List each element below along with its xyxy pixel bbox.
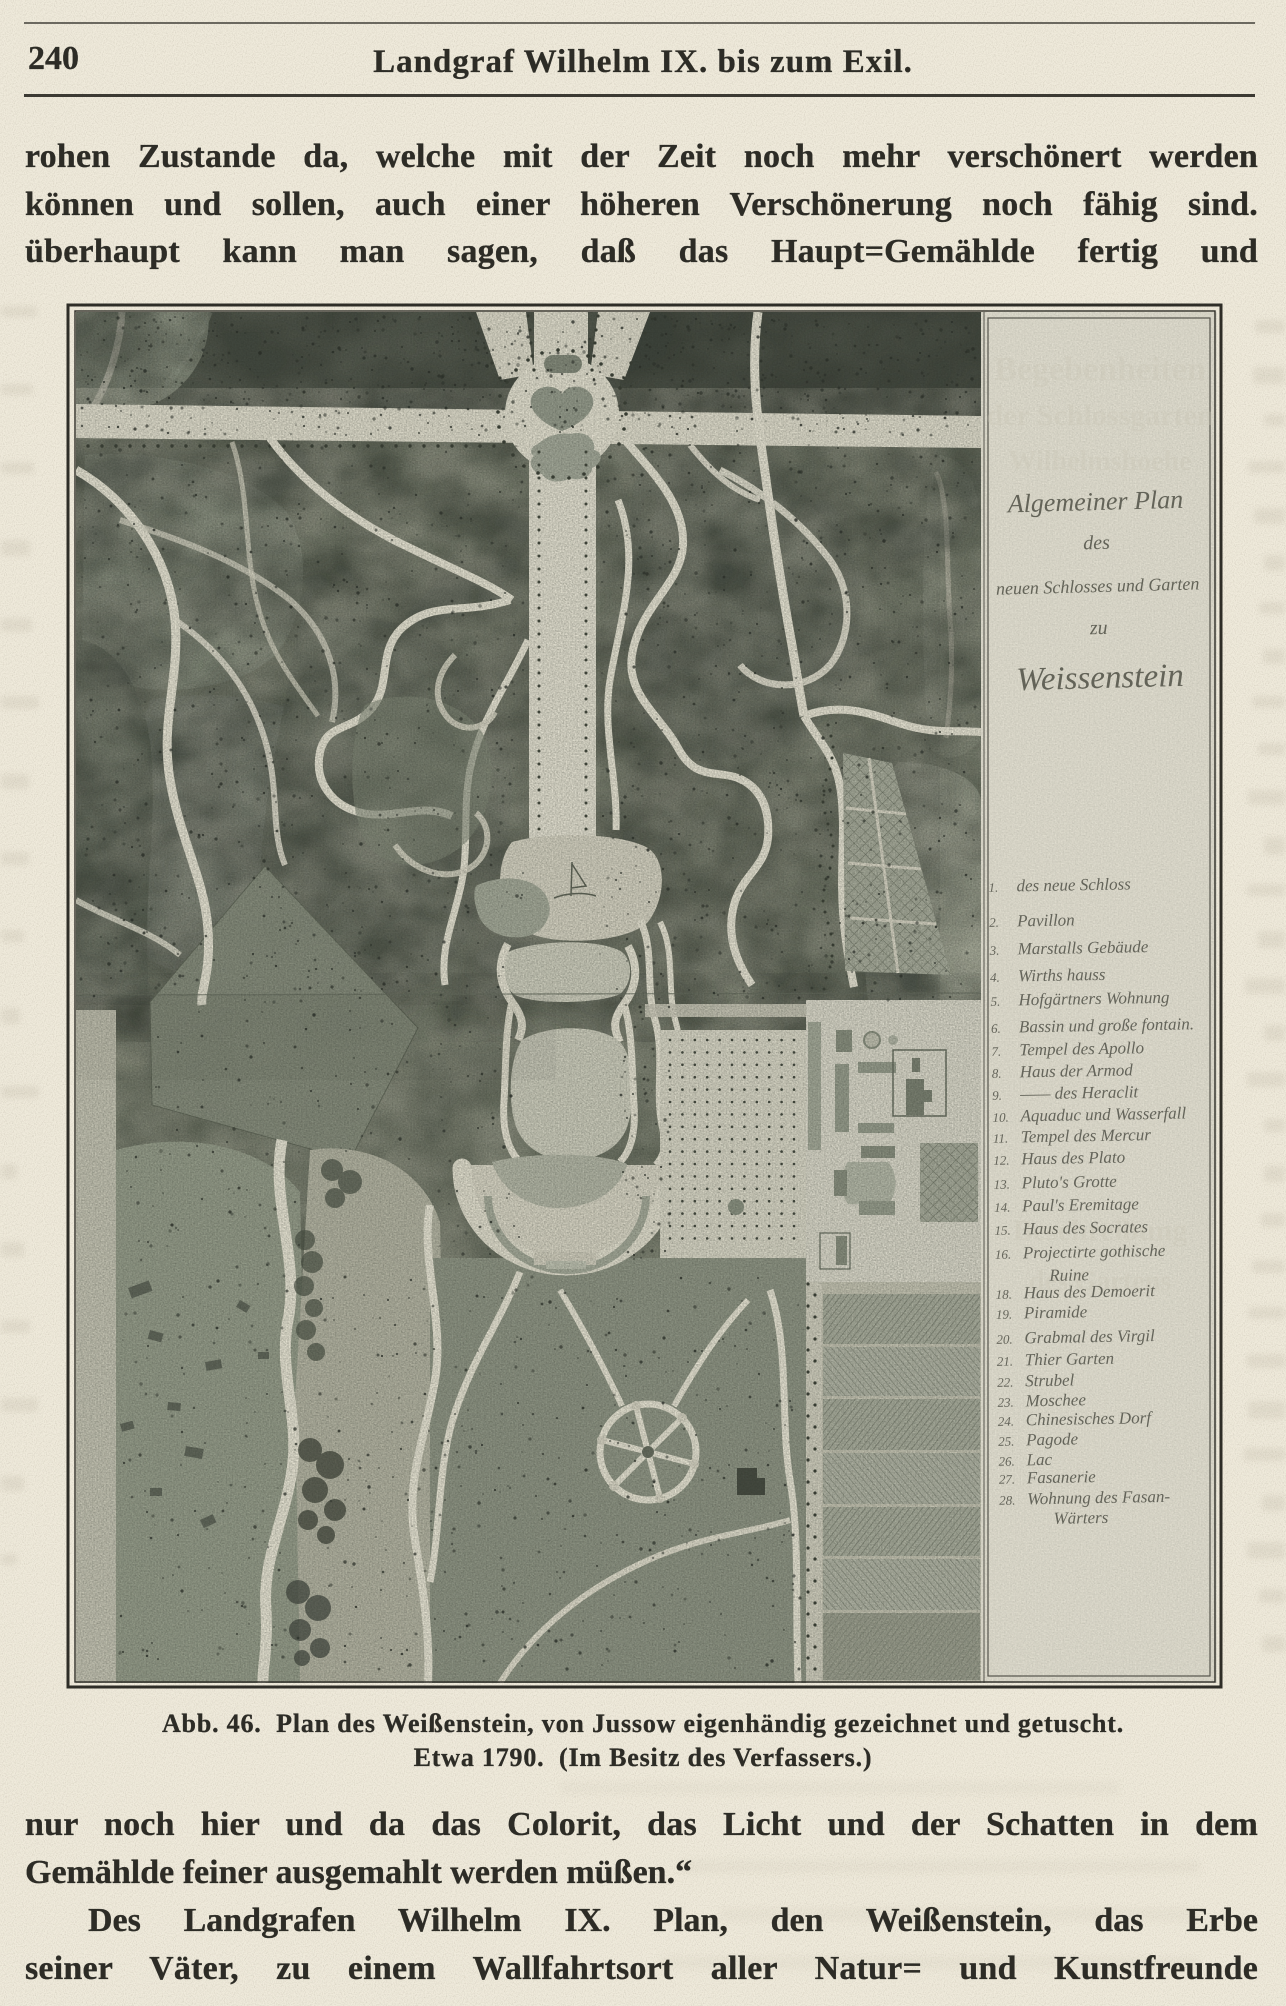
svg-text:2.: 2. [989,915,999,930]
svg-text:des: des [1083,532,1110,555]
svg-text:Fasanerie: Fasanerie [1026,1467,1097,1487]
svg-text:16.: 16. [995,1247,1012,1262]
svg-text:6.: 6. [991,1021,1001,1036]
svg-text:27.: 27. [999,1472,1016,1487]
svg-text:Pagode: Pagode [1025,1429,1079,1449]
svg-text:12.: 12. [993,1153,1010,1168]
svg-text:Marstalls Gebäude: Marstalls Gebäude [1016,937,1149,958]
svg-text:23.: 23. [997,1395,1014,1410]
svg-text:Wilhelmshoehe: Wilhelmshoehe [1008,446,1191,477]
svg-text:der Schlossgarten: der Schlossgarten [987,399,1214,432]
svg-text:Pavillon: Pavillon [1016,910,1075,930]
svg-text:1.: 1. [988,880,998,895]
svg-text:5.: 5. [990,994,1000,1009]
svg-text:des neue Schloss: des neue Schloss [1016,874,1131,895]
svg-text:Thier Garten: Thier Garten [1025,1349,1115,1370]
svg-text:18.: 18. [995,1287,1012,1302]
svg-text:24.: 24. [998,1414,1015,1429]
svg-text:Tempel des Mercur: Tempel des Mercur [1021,1125,1152,1146]
svg-text:14.: 14. [994,1200,1011,1215]
svg-text:Algemeiner Plan: Algemeiner Plan [1005,485,1183,519]
svg-text:Projectirte gothische: Projectirte gothische [1022,1241,1166,1263]
svg-text:Lac: Lac [1025,1450,1052,1469]
svg-text:Grabmal des Virgil: Grabmal des Virgil [1024,1326,1155,1347]
svg-text:Wirths hauss: Wirths hauss [1018,965,1106,986]
svg-text:Tempel des Apollo: Tempel des Apollo [1019,1038,1144,1059]
svg-text:7.: 7. [991,1044,1001,1059]
svg-text:—— des Heraclit: —— des Heraclit [1019,1082,1140,1103]
svg-text:13.: 13. [994,1177,1011,1192]
svg-text:26.: 26. [998,1454,1015,1469]
svg-text:19.: 19. [996,1307,1013,1322]
svg-text:Aquaduc und Wasserfall: Aquaduc und Wasserfall [1019,1103,1186,1125]
svg-text:Haus des Demoerit: Haus des Demoerit [1022,1281,1156,1302]
svg-text:10.: 10. [992,1110,1009,1125]
svg-text:Hofgärtners Wohnung: Hofgärtners Wohnung [1017,988,1169,1010]
svg-text:21.: 21. [997,1354,1014,1369]
svg-text:Haus des Socrates: Haus des Socrates [1021,1217,1148,1238]
svg-text:11.: 11. [993,1131,1009,1146]
svg-text:Paul's Eremitage: Paul's Eremitage [1021,1194,1140,1215]
svg-text:Strubel: Strubel [1025,1370,1075,1390]
svg-text:15.: 15. [994,1223,1011,1238]
svg-text:3.: 3. [988,943,999,958]
svg-text:8.: 8. [992,1066,1002,1081]
svg-text:zu: zu [1089,617,1108,639]
svg-text:Weissenstein: Weissenstein [1016,658,1184,698]
svg-text:28.: 28. [999,1493,1016,1508]
svg-text:Chinesisches Dorf: Chinesisches Dorf [1026,1408,1154,1429]
svg-text:Wohnung des Fasan-: Wohnung des Fasan- [1027,1487,1171,1508]
svg-text:Haus des Plato: Haus des Plato [1020,1148,1125,1169]
svg-text:25.: 25. [998,1434,1015,1449]
svg-text:20.: 20. [996,1332,1013,1347]
svg-text:Wärters: Wärters [1053,1508,1108,1528]
svg-text:Begebenheiten: Begebenheiten [994,351,1206,388]
svg-text:Moschee: Moschee [1024,1390,1086,1410]
svg-text:Haus der Armod: Haus der Armod [1019,1060,1134,1081]
svg-text:Bassin und große fontain.: Bassin und große fontain. [1019,1014,1194,1036]
svg-text:4.: 4. [990,970,1000,985]
svg-text:22.: 22. [997,1375,1014,1390]
svg-text:Piramide: Piramide [1023,1302,1088,1322]
svg-text:9.: 9. [992,1088,1002,1103]
svg-text:Pluto's Grotte: Pluto's Grotte [1021,1172,1118,1193]
